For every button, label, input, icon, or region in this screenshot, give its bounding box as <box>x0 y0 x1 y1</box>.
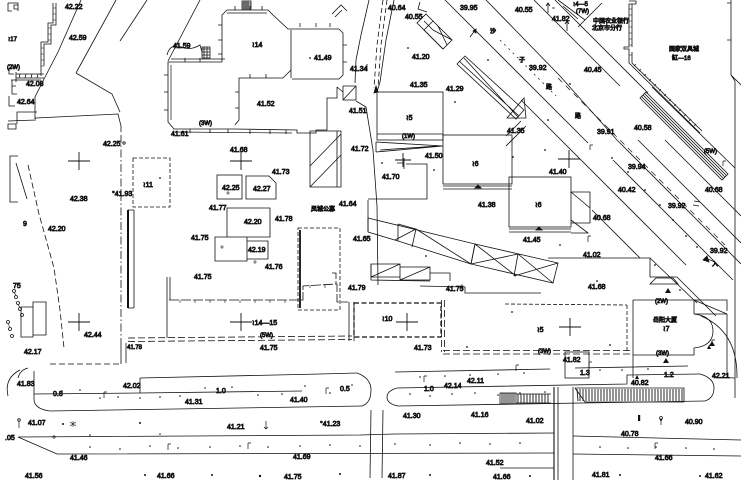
svg-text:41.65: 41.65 <box>353 236 371 243</box>
svg-text:(7W): (7W) <box>576 9 589 15</box>
svg-text:岳阳大厦: 岳阳大厦 <box>653 316 677 324</box>
svg-text:≀14—15: ≀14—15 <box>252 320 277 327</box>
svg-text:41.21: 41.21 <box>227 424 245 431</box>
svg-text:41.82: 41.82 <box>563 357 581 364</box>
svg-text:41.68: 41.68 <box>588 284 606 291</box>
svg-text:41.78: 41.78 <box>275 216 293 223</box>
svg-text:入: 入 <box>712 261 718 268</box>
svg-text:41.07: 41.07 <box>28 420 46 427</box>
svg-text:41.66: 41.66 <box>493 474 511 480</box>
svg-text:42.14: 42.14 <box>444 383 462 390</box>
svg-text:凤城公寡: 凤城公寡 <box>311 205 335 213</box>
svg-text:41.82: 41.82 <box>552 16 570 23</box>
svg-text:(2W): (2W) <box>7 65 20 71</box>
svg-text:41.16: 41.16 <box>471 412 489 419</box>
svg-text:41.52: 41.52 <box>486 460 504 467</box>
svg-text:41.49: 41.49 <box>314 55 332 62</box>
svg-text:42.25: 42.25 <box>222 185 240 192</box>
svg-text:41.69: 41.69 <box>293 454 311 461</box>
svg-text:≀7: ≀7 <box>663 326 670 333</box>
svg-text:39.94: 39.94 <box>628 164 646 171</box>
svg-text:40.68: 40.68 <box>705 187 723 194</box>
svg-text:≀6: ≀6 <box>535 202 542 209</box>
svg-text:41.51: 41.51 <box>349 108 367 115</box>
svg-text:41.38: 41.38 <box>478 202 496 209</box>
svg-text:≀6: ≀6 <box>472 161 479 168</box>
svg-text:41.31: 41.31 <box>185 399 203 406</box>
svg-text:0.8: 0.8 <box>53 391 63 398</box>
svg-text:42.21: 42.21 <box>712 373 730 380</box>
svg-text:42.44: 42.44 <box>84 332 102 339</box>
svg-text:国家双具城: 国家双具城 <box>669 45 699 53</box>
svg-text:41.61: 41.61 <box>171 131 189 138</box>
svg-text:(3W): (3W) <box>199 121 212 127</box>
svg-text:41.70: 41.70 <box>382 174 400 181</box>
svg-text:41.40: 41.40 <box>290 397 308 404</box>
svg-text:(3W): (3W) <box>656 351 669 357</box>
svg-text:42.38: 42.38 <box>70 196 88 203</box>
svg-text:40.82: 40.82 <box>631 380 649 387</box>
svg-text:39.92: 39.92 <box>529 65 547 72</box>
svg-text:40.78: 40.78 <box>621 431 639 438</box>
svg-text:41.46: 41.46 <box>70 455 88 462</box>
svg-text:41.76: 41.76 <box>265 264 283 271</box>
svg-text:≀5: ≀5 <box>406 115 413 122</box>
svg-text:41.40: 41.40 <box>549 169 567 176</box>
svg-text:41.72: 41.72 <box>351 146 369 153</box>
svg-text:41.59: 41.59 <box>173 43 191 50</box>
svg-text:41.77: 41.77 <box>209 205 227 212</box>
svg-text:≀5: ≀5 <box>537 327 544 334</box>
svg-text:42.59: 42.59 <box>69 35 87 42</box>
svg-text:(3W): (3W) <box>538 349 551 355</box>
svg-text:41.87: 41.87 <box>388 473 406 480</box>
svg-text:41.64: 41.64 <box>339 201 357 208</box>
svg-text:40.58: 40.58 <box>634 125 652 132</box>
svg-text:41.34: 41.34 <box>350 66 368 73</box>
svg-text:41.68: 41.68 <box>230 147 248 154</box>
svg-text:40.90: 40.90 <box>685 419 703 426</box>
svg-text:39.92: 39.92 <box>710 248 728 255</box>
svg-text:41.66: 41.66 <box>157 473 175 480</box>
svg-text:41.29: 41.29 <box>446 86 464 93</box>
svg-text:0.5: 0.5 <box>340 386 350 393</box>
svg-text:1.3: 1.3 <box>580 370 590 377</box>
svg-text:42.17: 42.17 <box>24 349 42 356</box>
svg-text:40.55: 40.55 <box>515 7 533 14</box>
svg-text:41.66: 41.66 <box>655 455 673 462</box>
svg-text:39.95: 39.95 <box>460 5 478 12</box>
svg-text:39.91: 39.91 <box>597 129 615 136</box>
svg-text:路: 路 <box>575 112 581 120</box>
svg-text:41.73: 41.73 <box>414 345 432 352</box>
svg-text:42.22: 42.22 <box>65 4 83 11</box>
svg-text:42.27: 42.27 <box>253 186 271 193</box>
svg-text:°41.93: °41.93 <box>112 190 132 198</box>
svg-text:中国农业银行: 中国农业银行 <box>593 17 629 25</box>
svg-text:41.56: 41.56 <box>25 473 43 480</box>
svg-text:41.20: 41.20 <box>412 54 430 61</box>
svg-text:(2W): (2W) <box>655 299 668 305</box>
svg-text:路: 路 <box>546 83 552 91</box>
svg-text:(5W): (5W) <box>704 149 717 155</box>
svg-text:40.68: 40.68 <box>593 215 611 222</box>
svg-text:41.62: 41.62 <box>705 473 723 480</box>
svg-text:°41.23: °41.23 <box>320 420 340 428</box>
svg-text:41.75: 41.75 <box>260 345 278 352</box>
svg-text:≀10: ≀10 <box>382 316 393 323</box>
svg-text:41.30: 41.30 <box>403 413 421 420</box>
svg-text:41.35: 41.35 <box>410 82 428 89</box>
svg-text:40.45: 40.45 <box>584 67 602 74</box>
svg-text:41.50: 41.50 <box>425 153 443 160</box>
svg-text:41.45: 41.45 <box>523 237 541 244</box>
svg-text:41.75: 41.75 <box>284 474 302 480</box>
svg-text:75: 75 <box>13 283 21 290</box>
svg-text:41.83: 41.83 <box>17 381 35 388</box>
svg-text:41.75: 41.75 <box>194 274 212 281</box>
svg-text:≀11: ≀11 <box>143 182 153 189</box>
svg-text:北京市分行: 北京市分行 <box>592 24 622 32</box>
svg-text:42.25: 42.25 <box>103 141 121 148</box>
svg-text:40.64: 40.64 <box>388 5 406 12</box>
svg-text:42.02: 42.02 <box>123 383 141 390</box>
svg-text:41.78: 41.78 <box>127 345 143 351</box>
svg-text:≀17: ≀17 <box>8 37 18 43</box>
svg-text:≀4—5: ≀4—5 <box>573 2 589 8</box>
svg-text:9: 9 <box>23 221 27 228</box>
svg-text:41.52: 41.52 <box>257 101 275 108</box>
svg-text:1.0: 1.0 <box>216 388 226 395</box>
svg-text:41.81: 41.81 <box>592 472 610 479</box>
svg-text:42.19: 42.19 <box>248 247 266 254</box>
svg-text:42.11: 42.11 <box>467 378 484 385</box>
svg-text:1.2: 1.2 <box>664 372 674 379</box>
svg-text:.05: .05 <box>5 435 15 442</box>
svg-text:41.79: 41.79 <box>348 285 366 292</box>
svg-text:41.35: 41.35 <box>507 128 525 135</box>
svg-text:41.75: 41.75 <box>191 235 209 242</box>
svg-text:缸—16: 缸—16 <box>672 54 691 62</box>
svg-text:子: 子 <box>519 57 525 64</box>
svg-text:42.64: 42.64 <box>17 99 35 106</box>
svg-text:42.08: 42.08 <box>26 81 44 88</box>
svg-text:41.73: 41.73 <box>272 169 290 176</box>
svg-text:沙: 沙 <box>490 28 496 35</box>
svg-text:41.02: 41.02 <box>583 252 601 259</box>
svg-text:42.20: 42.20 <box>244 219 262 226</box>
svg-text:39.92: 39.92 <box>668 203 686 210</box>
svg-text:≀14: ≀14 <box>252 42 263 49</box>
svg-text:41.02: 41.02 <box>526 418 544 425</box>
svg-text:(5W): (5W) <box>260 333 273 339</box>
svg-text:40.42: 40.42 <box>618 187 636 194</box>
svg-text:42.20: 42.20 <box>48 226 66 233</box>
svg-text:(1W): (1W) <box>402 134 415 140</box>
